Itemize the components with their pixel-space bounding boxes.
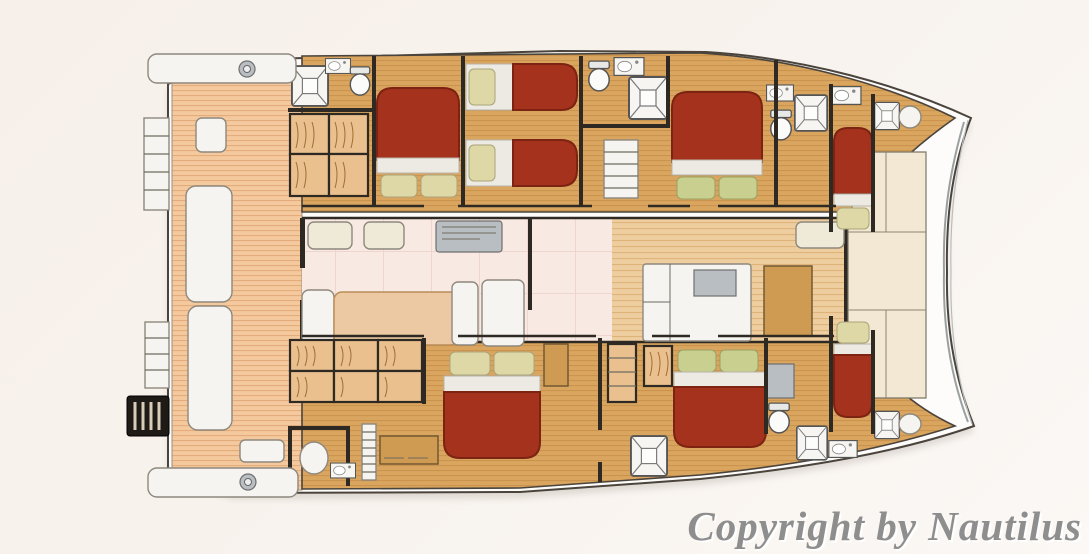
wardrobe (644, 346, 672, 386)
shower (875, 102, 900, 129)
galley-cabinet (764, 266, 812, 336)
shower (629, 77, 667, 119)
saloon-partition (528, 218, 532, 310)
davit (127, 396, 169, 436)
wardrobe (290, 114, 368, 196)
floorplan-image: Copyright by Nautilus Copyright by Nauti… (0, 0, 1089, 554)
shower (795, 95, 827, 131)
desk (380, 436, 438, 464)
sofa (302, 290, 334, 347)
saloon (300, 218, 848, 347)
sink (831, 87, 861, 105)
cockpit-seat (196, 118, 226, 152)
copyright-watermark: Copyright by Nautilus Copyright by Nauti… (687, 503, 1084, 551)
galley-counter (643, 264, 751, 341)
cockpit-seat (240, 440, 284, 462)
bathroom-bow-port (875, 102, 921, 129)
toilet (350, 67, 369, 95)
single-bed (466, 140, 577, 186)
shower (631, 436, 667, 476)
sink (614, 58, 644, 76)
shower (797, 426, 827, 460)
single-bed-fwd-starboard (834, 322, 872, 417)
stairs (362, 424, 376, 480)
toilet (589, 61, 609, 91)
boarding-steps (145, 322, 169, 388)
wardrobe (290, 340, 422, 402)
single-bed (466, 64, 577, 110)
sink (331, 463, 356, 478)
svg-text:Copyright by Nautilus: Copyright by Nautilus (687, 503, 1082, 549)
toilet (771, 110, 791, 140)
boarding-steps (144, 118, 169, 210)
toilet (899, 106, 921, 128)
cockpit-bench (186, 186, 232, 302)
single-bed-fwd-port (834, 128, 872, 229)
stairs (604, 140, 638, 198)
saloon-seat (308, 222, 352, 249)
sink (767, 85, 794, 101)
shower (292, 66, 328, 106)
shower-pan (766, 364, 794, 398)
nav-console (436, 221, 502, 252)
swim-platform (148, 54, 296, 83)
toilet (300, 442, 328, 474)
catamaran-floorplan: Copyright by Nautilus Copyright by Nauti… (0, 0, 1089, 554)
double-bed-mid-starboard (674, 350, 766, 447)
toilet (769, 403, 789, 433)
sink (326, 59, 351, 74)
cockpit-bench (188, 306, 232, 430)
bookshelf (608, 344, 636, 402)
shower (875, 411, 900, 438)
saloon-seat (364, 222, 404, 249)
saloon-seat (796, 222, 844, 248)
sink (829, 441, 857, 458)
swim-platform (148, 468, 298, 497)
toilet (899, 414, 921, 434)
shelf (544, 344, 568, 386)
